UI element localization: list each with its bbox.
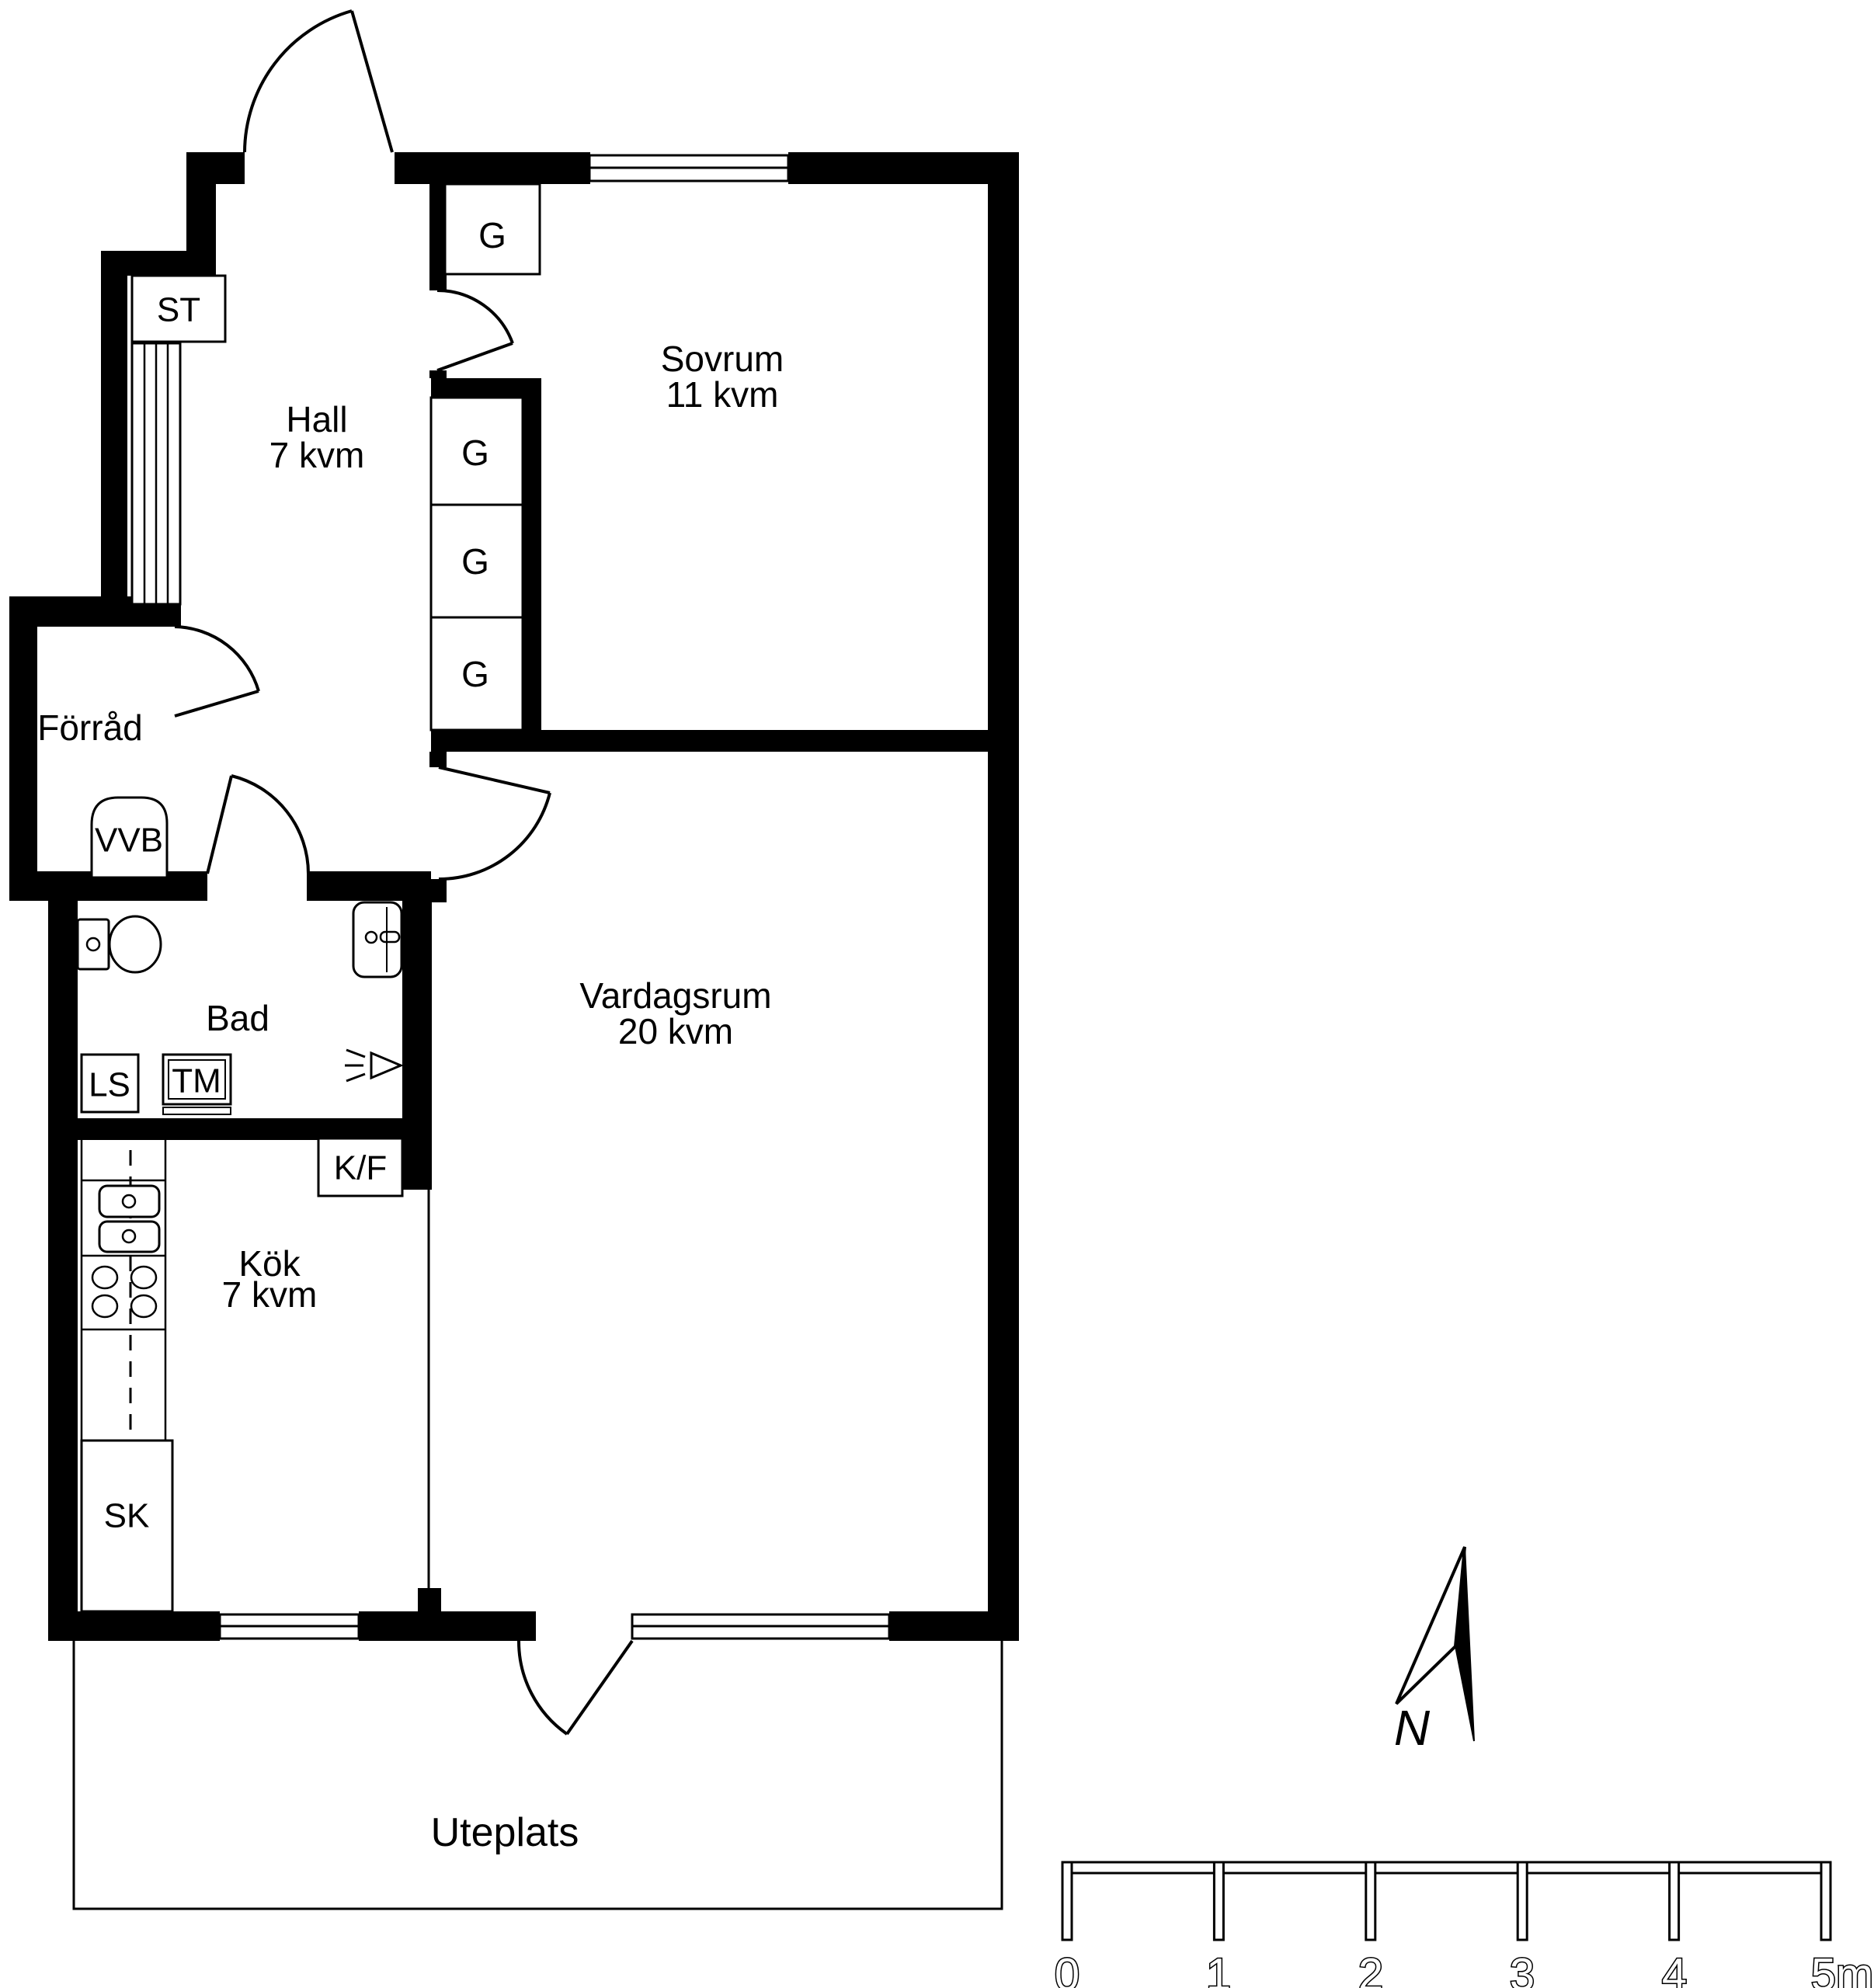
room-label-sovrum: Sovrum 11 kvm bbox=[661, 339, 784, 415]
room-label-vardagsrum: Vardagsrum 20 kvm bbox=[579, 975, 771, 1051]
wardrobe-label: G bbox=[461, 433, 489, 473]
sovrum-window bbox=[589, 155, 788, 181]
patio-door bbox=[519, 1641, 632, 1734]
room-area: 20 kvm bbox=[618, 1011, 733, 1051]
room-label-bad: Bad bbox=[206, 998, 269, 1038]
vardagsrum-door bbox=[439, 767, 550, 879]
north-label: N bbox=[1394, 1700, 1431, 1756]
tm-label: TM bbox=[172, 1062, 221, 1100]
sovrum-door bbox=[437, 290, 513, 370]
ls-label: LS bbox=[89, 1066, 130, 1104]
vvb-label: VVB bbox=[95, 822, 163, 860]
kf-label: K/F bbox=[334, 1149, 387, 1187]
floor-plan-drawing: G G G G ST VVB LS TM bbox=[0, 0, 1874, 1988]
stove-icon bbox=[92, 1267, 156, 1317]
kitchen-counter: SK bbox=[82, 1124, 172, 1611]
scale-tick-label: 5m bbox=[1811, 1950, 1874, 1988]
uteplats-outline bbox=[74, 1641, 1002, 1909]
st-closet: ST bbox=[132, 276, 225, 342]
scale-tick-label: 0 bbox=[1055, 1950, 1080, 1988]
radiator bbox=[132, 343, 180, 604]
kitchen-sink-icon bbox=[99, 1186, 159, 1252]
forrad-door bbox=[175, 627, 259, 716]
wardrobe-label: G bbox=[461, 541, 489, 582]
scale-tick-label: 1 bbox=[1206, 1950, 1231, 1988]
bad-door bbox=[207, 776, 308, 874]
entrance-door bbox=[245, 11, 392, 152]
water-heater-vvb: VVB bbox=[92, 798, 167, 878]
floor-plan: G G G G ST VVB LS TM bbox=[0, 0, 1874, 1988]
kitchen-window bbox=[220, 1614, 359, 1639]
room-area: 7 kvm bbox=[269, 435, 365, 475]
sk-cabinet: SK bbox=[82, 1441, 172, 1611]
room-label-forrad: Förråd bbox=[37, 707, 142, 748]
room-area: 7 kvm bbox=[222, 1274, 318, 1315]
room-label-hall: Hall 7 kvm bbox=[269, 399, 365, 475]
fridge-freezer-kf: K/F bbox=[318, 1138, 402, 1196]
wardrobe-label: G bbox=[461, 654, 489, 694]
scale-bar: 0 1 2 3 4 5m bbox=[1055, 1862, 1873, 1988]
st-label: ST bbox=[157, 291, 200, 329]
livingroom-window bbox=[632, 1614, 889, 1639]
sk-label: SK bbox=[104, 1497, 150, 1535]
ls-cabinet: LS bbox=[82, 1055, 138, 1112]
room-name: Vardagsrum bbox=[579, 975, 771, 1016]
scale-tick-label: 2 bbox=[1358, 1950, 1383, 1988]
shower-icon bbox=[345, 1050, 401, 1081]
washing-machine-tm: TM bbox=[163, 1055, 231, 1114]
room-area: 11 kvm bbox=[666, 374, 779, 415]
room-name: Hall bbox=[286, 399, 347, 440]
room-label-kok: Kök 7 kvm bbox=[222, 1243, 318, 1315]
scale-tick-label: 3 bbox=[1510, 1950, 1535, 1988]
room-label-uteplats: Uteplats bbox=[431, 1810, 579, 1855]
scale-tick-label: 4 bbox=[1662, 1950, 1687, 1988]
washbasin-fixture bbox=[353, 902, 402, 977]
room-name: Sovrum bbox=[661, 339, 784, 379]
wardrobe-label: G bbox=[478, 215, 506, 255]
wardrobe-g1: G bbox=[445, 184, 540, 274]
wardrobe-stack: G G G bbox=[431, 398, 523, 730]
toilet-fixture bbox=[78, 916, 161, 972]
north-arrow-icon: N bbox=[1394, 1547, 1474, 1756]
